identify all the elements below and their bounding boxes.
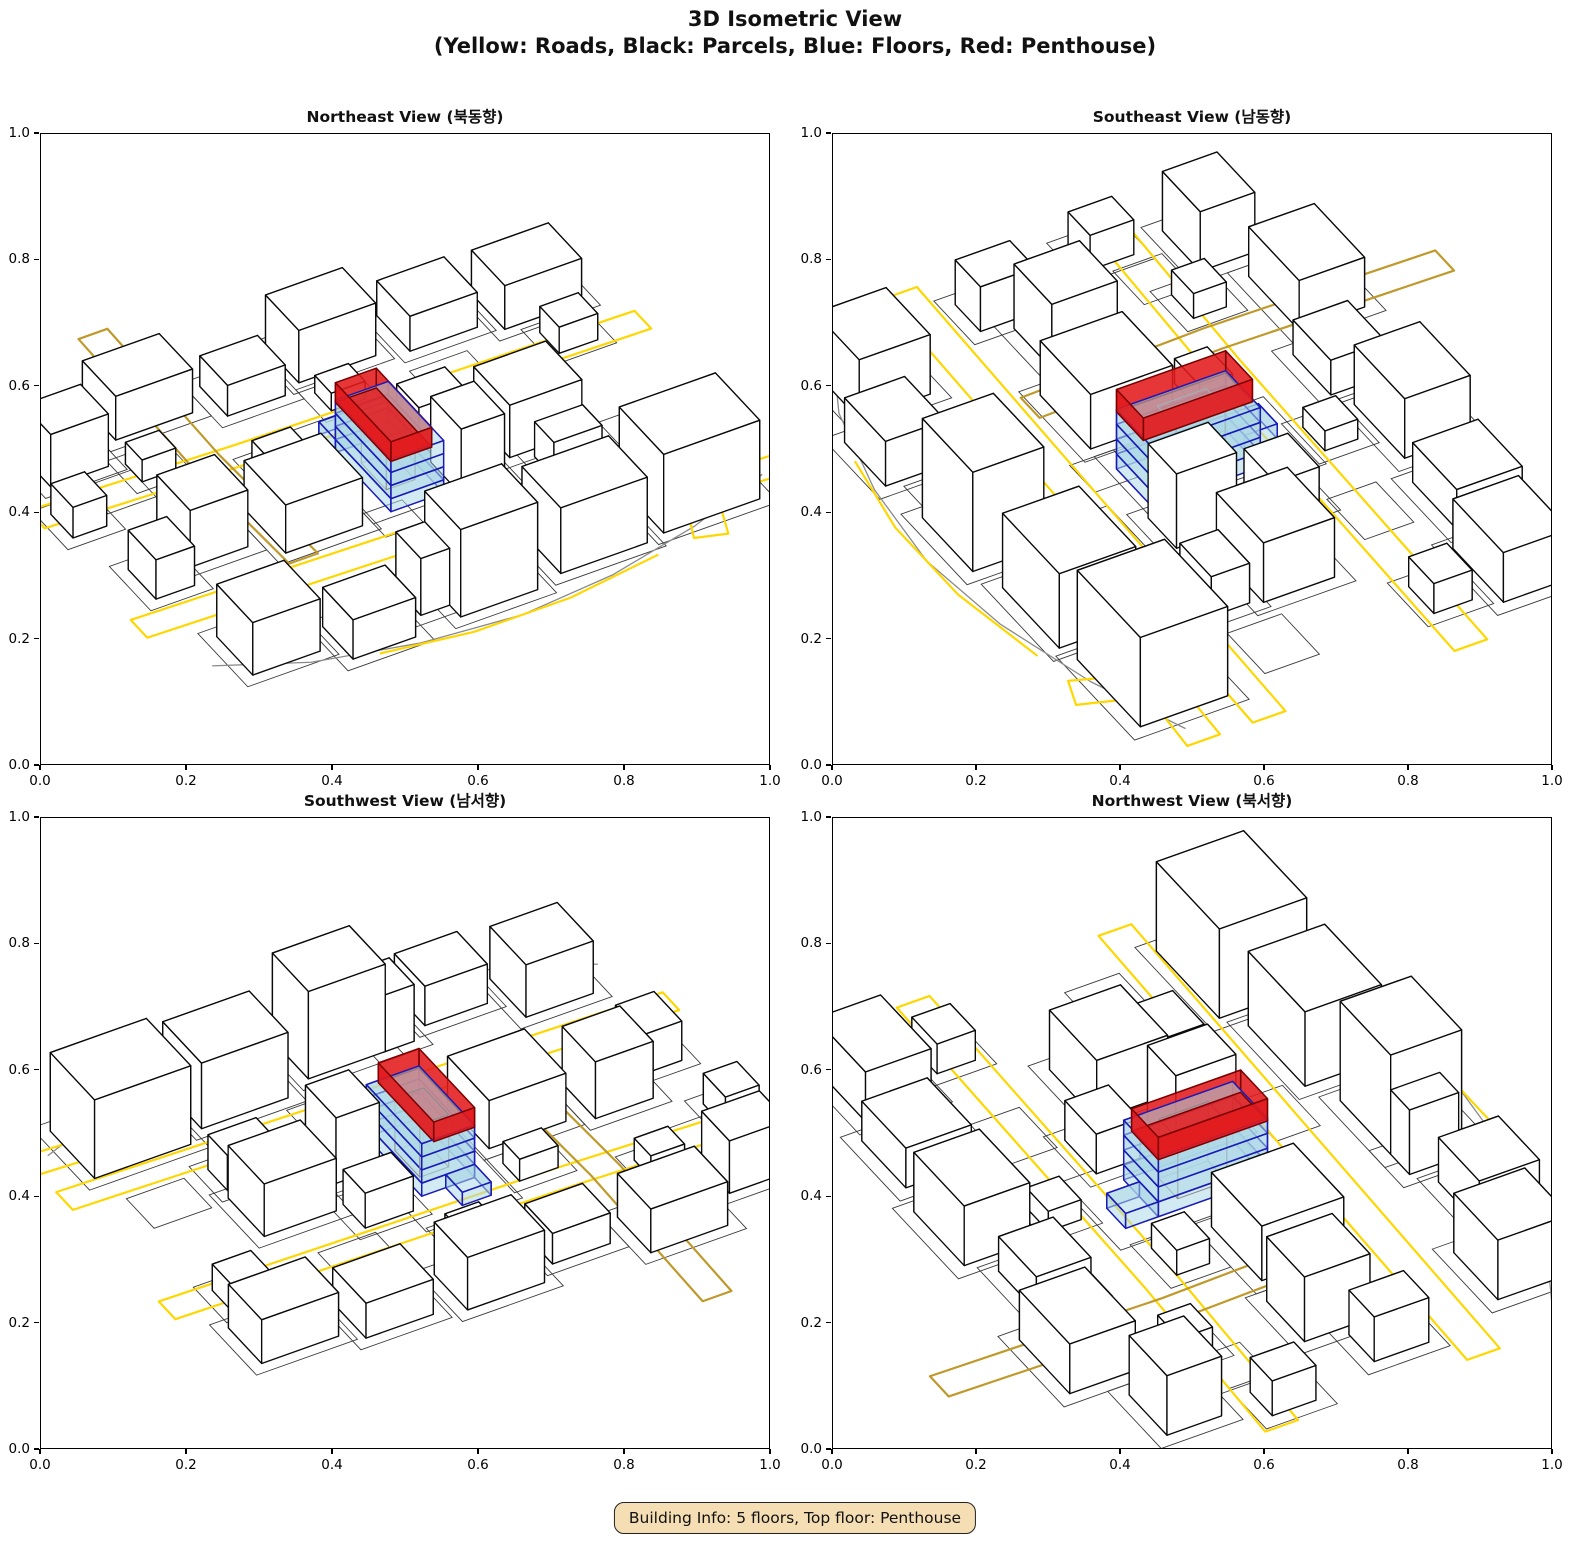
y-tick-label: 0.4 (0, 504, 30, 520)
x-tick-label: 0.4 (1098, 1457, 1142, 1473)
y-tick-mark (34, 1196, 39, 1197)
y-tick-mark (34, 764, 39, 765)
subplot-northwest: Northwest View (북서향) 0.00.00.20.20.40.40… (832, 817, 1552, 1449)
x-tick-label: 0.6 (456, 1457, 500, 1473)
x-tick-mark (331, 765, 332, 770)
y-tick-label: 0.0 (0, 1441, 30, 1457)
x-tick-mark (975, 765, 976, 770)
x-tick-label: 0.6 (1242, 1457, 1286, 1473)
x-tick-label: 0.8 (1386, 773, 1430, 789)
x-tick-label: 1.0 (748, 1457, 792, 1473)
x-tick-label: 0.2 (954, 773, 998, 789)
y-tick-label: 0.2 (784, 631, 822, 647)
x-tick-mark (1119, 1449, 1120, 1454)
x-tick-label: 0.0 (18, 1457, 62, 1473)
y-tick-label: 0.8 (0, 251, 30, 267)
y-tick-label: 0.2 (784, 1315, 822, 1331)
y-tick-mark (34, 816, 39, 817)
x-tick-label: 1.0 (1530, 773, 1574, 789)
x-tick-mark (477, 765, 478, 770)
figure-title-line2: (Yellow: Roads, Black: Parcels, Blue: Fl… (0, 34, 1590, 58)
y-tick-mark (34, 1322, 39, 1323)
scene-canvas-1 (833, 134, 1551, 764)
subplot-northeast: Northeast View (북동향) 0.00.00.20.20.40.40… (40, 133, 770, 765)
x-tick-mark (769, 1449, 770, 1454)
x-tick-label: 0.2 (164, 1457, 208, 1473)
x-tick-mark (831, 1449, 832, 1454)
x-tick-mark (185, 765, 186, 770)
y-tick-label: 0.6 (0, 1062, 30, 1078)
y-tick-label: 0.2 (0, 1315, 30, 1331)
x-tick-label: 0.6 (456, 773, 500, 789)
y-tick-mark (826, 132, 831, 133)
y-tick-label: 0.6 (0, 378, 30, 394)
y-tick-label: 0.4 (0, 1188, 30, 1204)
plot-area-northwest (832, 817, 1552, 1449)
y-tick-mark (826, 1322, 831, 1323)
y-tick-mark (826, 1069, 831, 1070)
x-tick-label: 0.8 (1386, 1457, 1430, 1473)
x-tick-mark (39, 1449, 40, 1454)
y-tick-mark (34, 1448, 39, 1449)
x-tick-label: 1.0 (748, 773, 792, 789)
x-tick-mark (39, 765, 40, 770)
y-tick-label: 0.0 (784, 1441, 822, 1457)
figure-title-line1: 3D Isometric View (0, 7, 1590, 31)
subplot-southeast: Southeast View (남동향) 0.00.00.20.20.40.40… (832, 133, 1552, 765)
subplot-title-southeast: Southeast View (남동향) (832, 105, 1552, 127)
y-tick-label: 0.6 (784, 378, 822, 394)
y-tick-mark (34, 512, 39, 513)
y-tick-label: 0.4 (784, 1188, 822, 1204)
building-face (421, 548, 450, 615)
x-tick-label: 0.4 (310, 1457, 354, 1473)
x-tick-mark (769, 765, 770, 770)
y-tick-label: 1.0 (0, 125, 30, 141)
x-tick-mark (975, 1449, 976, 1454)
x-tick-mark (477, 1449, 478, 1454)
x-tick-label: 0.0 (810, 773, 854, 789)
figure-canvas: { "figure": { "title_line1": "3D Isometr… (0, 0, 1590, 1560)
y-tick-label: 0.6 (784, 1062, 822, 1078)
y-tick-mark (34, 1069, 39, 1070)
y-tick-mark (826, 385, 831, 386)
x-tick-label: 0.0 (18, 773, 62, 789)
y-tick-label: 0.8 (0, 935, 30, 951)
x-tick-label: 0.4 (1098, 773, 1142, 789)
subplot-title-southwest: Southwest View (남서향) (40, 789, 770, 811)
x-tick-mark (1119, 765, 1120, 770)
x-tick-mark (1263, 1449, 1264, 1454)
subplot-southwest: Southwest View (남서향) 0.00.00.20.20.40.40… (40, 817, 770, 1449)
x-tick-mark (1407, 1449, 1408, 1454)
x-tick-mark (1551, 1449, 1552, 1454)
parcel-outline (1227, 614, 1319, 674)
y-tick-label: 0.2 (0, 631, 30, 647)
x-tick-label: 0.8 (602, 1457, 646, 1473)
subplot-title-northeast: Northeast View (북동향) (40, 105, 770, 127)
y-tick-label: 0.0 (0, 757, 30, 773)
y-tick-mark (34, 259, 39, 260)
y-tick-label: 1.0 (784, 809, 822, 825)
x-tick-mark (1407, 765, 1408, 770)
plot-area-northeast (40, 133, 770, 765)
scene-canvas-2 (41, 818, 769, 1448)
x-tick-mark (623, 765, 624, 770)
y-tick-label: 0.4 (784, 504, 822, 520)
x-tick-mark (831, 765, 832, 770)
y-tick-mark (34, 385, 39, 386)
y-tick-mark (826, 512, 831, 513)
x-tick-mark (331, 1449, 332, 1454)
y-tick-mark (826, 943, 831, 944)
y-tick-mark (34, 132, 39, 133)
y-tick-label: 0.0 (784, 757, 822, 773)
x-tick-mark (1551, 765, 1552, 770)
y-tick-mark (34, 638, 39, 639)
x-tick-mark (623, 1449, 624, 1454)
scene-canvas-3 (833, 818, 1551, 1448)
y-tick-label: 0.8 (784, 251, 822, 267)
parcel-outline (126, 1178, 211, 1228)
y-tick-mark (826, 1196, 831, 1197)
y-tick-mark (826, 638, 831, 639)
y-tick-label: 1.0 (0, 809, 30, 825)
y-tick-label: 0.8 (784, 935, 822, 951)
plot-area-southwest (40, 817, 770, 1449)
scene-canvas-0 (41, 134, 769, 764)
subplot-title-northwest: Northwest View (북서향) (832, 789, 1552, 811)
x-tick-label: 1.0 (1530, 1457, 1574, 1473)
y-tick-mark (826, 764, 831, 765)
x-tick-label: 0.8 (602, 773, 646, 789)
y-tick-mark (826, 816, 831, 817)
x-tick-label: 0.0 (810, 1457, 854, 1473)
plot-area-southeast (832, 133, 1552, 765)
x-tick-label: 0.2 (954, 1457, 998, 1473)
x-tick-label: 0.2 (164, 773, 208, 789)
x-tick-label: 0.6 (1242, 773, 1286, 789)
x-tick-label: 0.4 (310, 773, 354, 789)
y-tick-mark (826, 259, 831, 260)
y-tick-mark (826, 1448, 831, 1449)
x-tick-mark (185, 1449, 186, 1454)
building-info-badge: Building Info: 5 floors, Top floor: Pent… (614, 1502, 976, 1534)
x-tick-mark (1263, 765, 1264, 770)
y-tick-label: 1.0 (784, 125, 822, 141)
y-tick-mark (34, 943, 39, 944)
building-face (385, 984, 414, 1051)
